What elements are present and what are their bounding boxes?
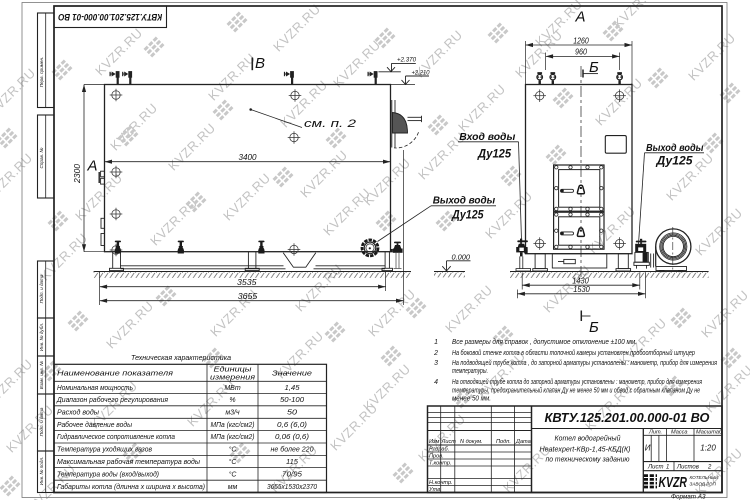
svg-text:50: 50: [287, 409, 297, 416]
svg-text:960: 960: [575, 48, 587, 57]
svg-text:°С: °С: [229, 458, 238, 466]
svg-text:Пров.: Пров.: [429, 454, 444, 460]
svg-text:Б: Б: [589, 59, 599, 76]
svg-text:2: 2: [707, 464, 712, 470]
svg-text:КВТУ.125.201.00.000-01 ВО: КВТУ.125.201.00.000-01 ВО: [58, 12, 162, 22]
svg-text:На подводящей трубе котла ,: На подводящей трубе котла , до запорной …: [452, 359, 717, 367]
svg-text:KVZR.RU: KVZR.RU: [103, 298, 156, 351]
svg-text:Наименование показателя: Наименование показателя: [57, 371, 173, 378]
svg-text:температуры.: температуры.: [452, 368, 488, 375]
svg-text:Гидравлическое сопротивление к: Гидравлическое сопротивление котла: [57, 433, 175, 441]
svg-text:KVZR.RU: KVZR.RU: [270, 1, 323, 54]
svg-text:Инв. № дубл.: Инв. № дубл.: [39, 323, 44, 351]
svg-text:KVZR.RU: KVZR.RU: [297, 147, 350, 200]
svg-text:Т.контр.: Т.контр.: [429, 461, 452, 467]
svg-text:%: %: [229, 397, 235, 404]
svg-text:Разраб.: Разраб.: [429, 447, 449, 453]
svg-text:Перв. примен.: Перв. примен.: [39, 57, 44, 88]
svg-text:Расход воды: Расход воды: [57, 408, 100, 416]
svg-text:Единицы: Единицы: [214, 366, 253, 374]
svg-text:Техническая характеристика: Техническая характеристика: [131, 353, 231, 362]
svg-text:Ду125: Ду125: [477, 147, 511, 161]
svg-text:KVZR.RU: KVZR.RU: [37, 230, 90, 283]
svg-text:Подп. и дата: Подп. и дата: [39, 274, 44, 303]
svg-text:50-100: 50-100: [280, 397, 304, 404]
svg-text:В: В: [255, 55, 265, 72]
svg-text:Все размеры для справок , допу: Все размеры для справок , допустимое отк…: [452, 338, 637, 346]
svg-text:3: 3: [434, 360, 438, 367]
svg-text:Лист: Лист: [647, 464, 663, 470]
svg-text:1260: 1260: [573, 36, 589, 45]
svg-text:Справ. №: Справ. №: [39, 148, 44, 169]
svg-text:Лит.: Лит.: [648, 430, 662, 436]
svg-text:Вход воды: Вход воды: [459, 132, 515, 143]
svg-text:Выход воды: Выход воды: [433, 196, 496, 207]
svg-text:Листов: Листов: [676, 464, 699, 470]
svg-text:МПа (кгс/см2): МПа (кгс/см2): [211, 434, 255, 441]
svg-text:м3/ч: м3/ч: [225, 409, 240, 416]
svg-text:КВТУ.125.201.00.000-01 ВО: КВТУ.125.201.00.000-01 ВО: [545, 411, 710, 425]
svg-text:На боковой стенке котла в обла: На боковой стенке котла в области топочн…: [452, 349, 695, 357]
svg-text:Диапазон рабочего регулировани: Диапазон рабочего регулирования: [56, 396, 168, 404]
svg-text:+2.210: +2.210: [412, 69, 430, 76]
svg-text:А: А: [575, 9, 586, 26]
svg-text:°С: °С: [229, 446, 238, 454]
svg-text:115: 115: [286, 459, 298, 466]
svg-text:KVZR.RU: KVZR.RU: [702, 362, 750, 415]
svg-text:И: И: [645, 444, 651, 453]
svg-text:КОТЕЛЬНЫЙ: КОТЕЛЬНЫЙ: [690, 473, 720, 480]
svg-text:KVZR.RU: KVZR.RU: [220, 170, 273, 223]
svg-text:Котел водогрейный: Котел водогрейный: [555, 434, 621, 443]
svg-text:Дата: Дата: [515, 439, 531, 445]
svg-text:Габариты котла (длинна х шир: Габариты котла (длинна х ширина х высота…: [57, 483, 205, 491]
svg-text:Температура воды (вход/выход): Температура воды (вход/выход): [57, 470, 159, 478]
svg-text:Взам. инв. №: Взам. инв. №: [39, 361, 44, 389]
svg-text:На отводящей трубе котла до за: На отводящей трубе котла до запорной арм…: [452, 378, 702, 386]
svg-text:KVZR.RU: KVZR.RU: [692, 445, 745, 498]
svg-text:А: А: [87, 158, 98, 175]
svg-text:+2.370: +2.370: [397, 57, 416, 64]
svg-text:1:20: 1:20: [700, 444, 716, 453]
svg-text:KVZR.RU: KVZR.RU: [442, 282, 495, 335]
svg-text:1: 1: [434, 339, 438, 346]
svg-text:0,06 (0,6): 0,06 (0,6): [275, 434, 309, 441]
svg-text:KVZR.RU: KVZR.RU: [692, 205, 745, 258]
svg-text:KVZR.RU: KVZR.RU: [107, 100, 160, 153]
svg-text:KVZR.RU: KVZR.RU: [165, 120, 218, 173]
svg-text:МВт: МВт: [224, 385, 241, 392]
svg-text:Н.контр.: Н.контр.: [429, 480, 453, 486]
svg-text:1,45: 1,45: [285, 385, 300, 392]
svg-text:KVZR.RU: KVZR.RU: [147, 195, 200, 248]
svg-text:KVZR.RU: KVZR.RU: [360, 155, 413, 208]
svg-text:Б: Б: [589, 319, 599, 336]
svg-text:KVZR.RU: KVZR.RU: [3, 402, 56, 455]
svg-text:KVZR.RU: KVZR.RU: [360, 361, 413, 414]
svg-text:температуры, предохранительный: температуры, предохранительный клапан Ду…: [452, 386, 700, 394]
svg-text:3655: 3655: [238, 291, 258, 301]
svg-text:N докум.: N докум.: [460, 439, 483, 445]
svg-text:2300: 2300: [72, 164, 82, 184]
svg-text:не более 220: не более 220: [271, 446, 314, 454]
svg-text:Формат А3: Формат А3: [671, 493, 706, 500]
svg-text:Heatexpert-КВр-1,45-КБД(К): Heatexpert-КВр-1,45-КБД(К): [540, 445, 631, 454]
svg-text:KVZR.RU: KVZR.RU: [0, 65, 39, 118]
svg-text:см. п. 2: см. п. 2: [304, 118, 356, 130]
svg-text:KVZR.RU: KVZR.RU: [0, 150, 36, 203]
svg-text:°С: °С: [229, 470, 238, 478]
svg-text:KVZR.RU: KVZR.RU: [685, 30, 738, 83]
svg-text:Ду125: Ду125: [655, 154, 692, 168]
svg-text:1: 1: [666, 464, 669, 470]
svg-text:KVZR: KVZR: [659, 475, 688, 491]
svg-text:Рабочее давление воды: Рабочее давление воды: [57, 421, 133, 429]
svg-text:Лист: Лист: [441, 439, 457, 445]
svg-text:Номинальная мощность: Номинальная мощность: [57, 385, 133, 392]
svg-text:по техническому заданию: по техническому заданию: [546, 455, 630, 464]
svg-text:Температура уходящих газов: Температура уходящих газов: [57, 446, 152, 454]
svg-text:0.000: 0.000: [452, 252, 471, 261]
svg-text:Подп. и дата: Подп. и дата: [39, 407, 44, 436]
svg-text:Максимальная рабочая температу: Максимальная рабочая температура воды: [57, 458, 201, 466]
svg-text:МПа (кгс/см2): МПа (кгс/см2): [211, 422, 255, 429]
svg-text:Утв.: Утв.: [428, 487, 442, 493]
svg-text:3400: 3400: [239, 152, 257, 162]
svg-text:Значение: Значение: [272, 371, 312, 378]
svg-text:менее 50 мм.: менее 50 мм.: [452, 395, 491, 402]
svg-text:0,6 (6,0): 0,6 (6,0): [277, 422, 307, 429]
svg-text:KVZR.RU: KVZR.RU: [92, 25, 145, 78]
svg-text:Выход воды: Выход воды: [646, 143, 704, 154]
svg-text:1530: 1530: [573, 284, 590, 294]
svg-text:KVZR.RU: KVZR.RU: [455, 81, 508, 134]
svg-text:Подп.: Подп.: [496, 439, 511, 445]
svg-text:KVZR.RU: KVZR.RU: [205, 50, 258, 103]
svg-text:мм: мм: [228, 484, 238, 491]
svg-text:3655х1530х2370: 3655х1530х2370: [267, 484, 317, 491]
svg-text:Ду125: Ду125: [451, 208, 484, 222]
svg-text:3535: 3535: [237, 277, 257, 287]
svg-text:KVZR.RU: KVZR.RU: [698, 287, 750, 340]
svg-text:измерения: измерения: [210, 374, 255, 381]
svg-text:Масса: Масса: [671, 430, 688, 436]
svg-text:2: 2: [433, 350, 438, 357]
svg-text:70/95: 70/95: [282, 471, 302, 478]
svg-text:Инв. № подл.: Инв. № подл.: [39, 457, 44, 486]
svg-text:KVZR.RU: KVZR.RU: [0, 356, 36, 409]
svg-text:ЗАВОД РЭП: ЗАВОД РЭП: [690, 482, 717, 487]
svg-text:Масштаб: Масштаб: [696, 430, 723, 436]
svg-text:Изм: Изм: [429, 439, 440, 445]
svg-text:4: 4: [434, 379, 438, 386]
